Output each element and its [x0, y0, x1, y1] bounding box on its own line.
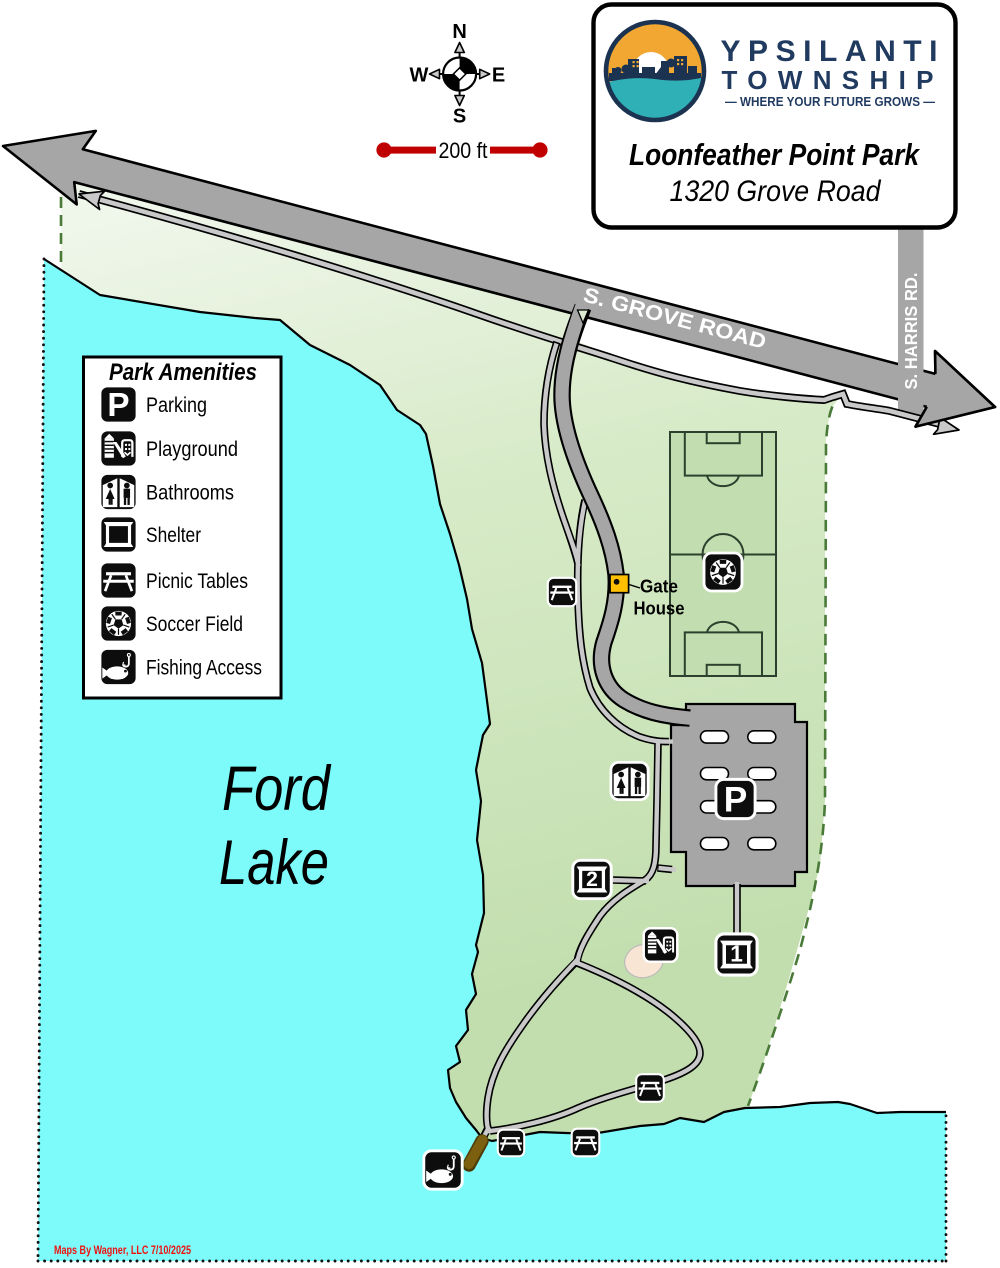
svg-text:1320 Grove Road: 1320 Grove Road — [670, 175, 882, 208]
svg-text:Shelter: Shelter — [146, 524, 201, 547]
svg-text:Parking: Parking — [146, 394, 207, 417]
svg-text:— WHERE YOUR FUTURE GROWS —: — WHERE YOUR FUTURE GROWS — — [725, 95, 935, 109]
svg-text:TOWNSHIP: TOWNSHIP — [722, 65, 941, 95]
svg-text:YPSILANTI: YPSILANTI — [721, 35, 942, 68]
svg-text:S. HARRIS RD.: S. HARRIS RD. — [901, 273, 921, 390]
svg-text:E: E — [492, 65, 505, 87]
svg-text:Loonfeather Point Park: Loonfeather Point Park — [629, 138, 921, 172]
svg-text:House: House — [634, 599, 685, 619]
svg-text:Soccer Field: Soccer Field — [146, 613, 243, 636]
svg-text:Ford: Ford — [222, 754, 332, 824]
svg-text:Gate: Gate — [640, 577, 678, 597]
svg-text:S: S — [453, 106, 466, 128]
svg-text:W: W — [410, 65, 429, 87]
svg-text:200 ft: 200 ft — [439, 138, 488, 163]
svg-text:N: N — [452, 21, 466, 43]
svg-text:Playground: Playground — [146, 438, 238, 461]
svg-text:Bathrooms: Bathrooms — [146, 482, 234, 505]
svg-text:Fishing Access: Fishing Access — [146, 657, 262, 680]
svg-text:Lake: Lake — [219, 828, 329, 898]
svg-text:Park Amenities: Park Amenities — [109, 359, 257, 386]
svg-text:Picnic Tables: Picnic Tables — [146, 570, 248, 593]
svg-text:Maps By Wagner, LLC 7/10/2025: Maps By Wagner, LLC 7/10/2025 — [54, 1245, 191, 1257]
